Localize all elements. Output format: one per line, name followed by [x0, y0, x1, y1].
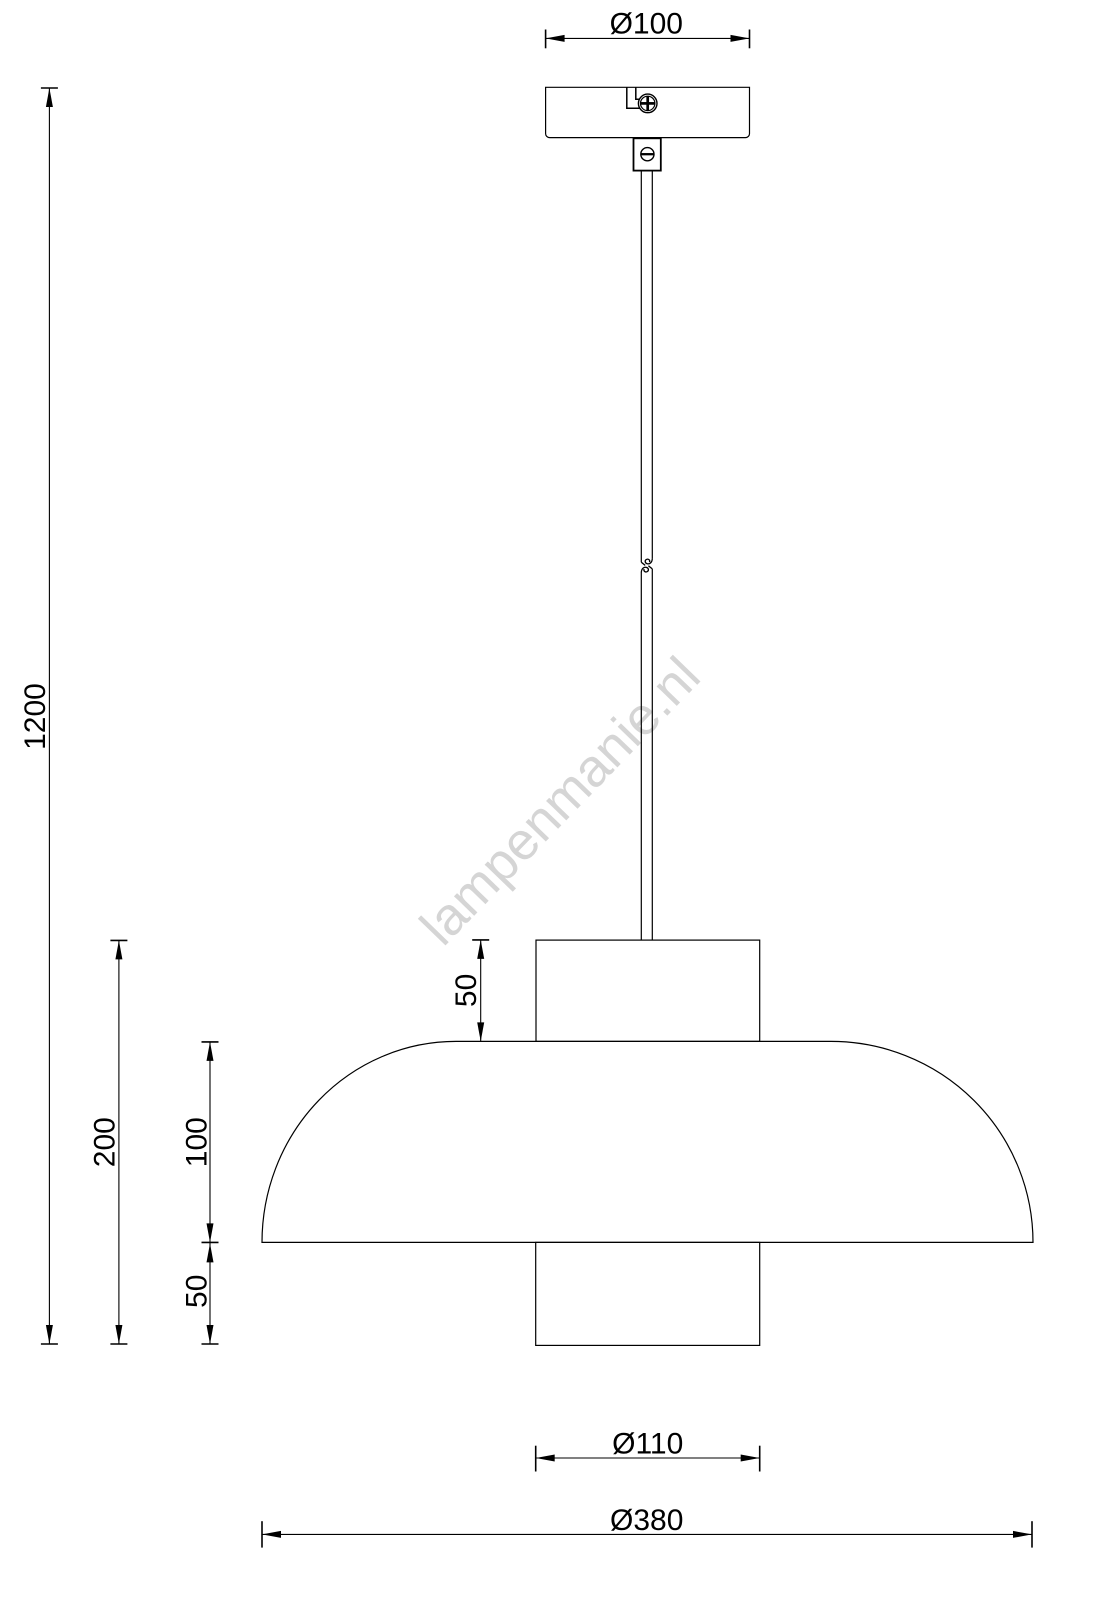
svg-text:1200: 1200	[19, 683, 52, 750]
svg-text:50: 50	[450, 974, 483, 1007]
svg-text:200: 200	[88, 1117, 121, 1167]
svg-text:Ø380: Ø380	[610, 1504, 683, 1537]
svg-text:50: 50	[181, 1275, 214, 1308]
svg-text:100: 100	[181, 1117, 214, 1167]
svg-text:Ø100: Ø100	[610, 8, 683, 41]
svg-text:Ø110: Ø110	[612, 1428, 683, 1461]
